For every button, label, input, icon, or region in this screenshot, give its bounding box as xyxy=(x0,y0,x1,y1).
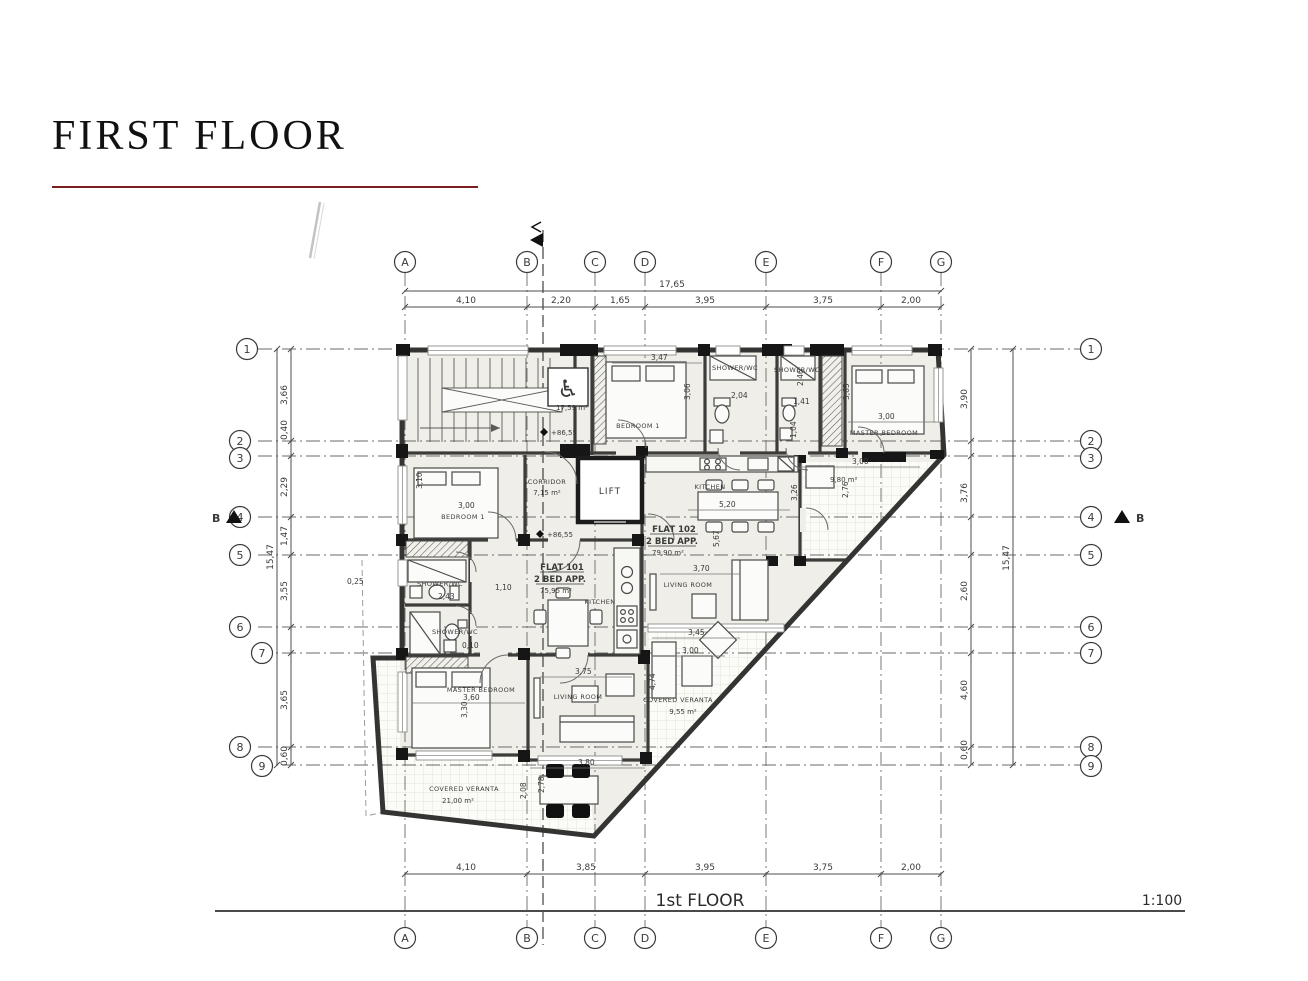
plan-dim-300a: 3,00 xyxy=(878,412,895,421)
dim-top-3: 1,65 xyxy=(610,296,630,306)
grid-letter-e-top: E xyxy=(763,256,770,269)
dim-bot-3: 3,95 xyxy=(695,863,715,873)
dim-top-6: 2,00 xyxy=(901,296,921,306)
pen-mark-artifact xyxy=(310,202,324,259)
flat102-shower1-label: SHOWER/WC xyxy=(712,364,758,372)
grid-letter-g-bottom: G xyxy=(937,932,946,945)
lift-label: LIFT xyxy=(599,487,621,497)
dimension-text-left: 3,66 0,40 2,29 1,47 3,55 3,65 0,60 15,47… xyxy=(266,385,364,766)
plan-dim-330: 3,30 xyxy=(460,701,469,718)
grid-number-7-right: 7 xyxy=(1088,647,1095,660)
plan-dim-347: 3,47 xyxy=(651,353,668,362)
corridor-label: CORRIDOR xyxy=(528,478,567,486)
plan-dim-204: 2,04 xyxy=(731,391,748,400)
grid-numbers-right: 1 2 3 4 5 6 7 8 9 xyxy=(1088,343,1095,773)
plan-dim-326: 3,26 xyxy=(790,484,799,501)
flat101-living-label: LIVING ROOM xyxy=(554,693,603,701)
corridor-area: 7,15 m² xyxy=(533,489,561,497)
flat101-type: 2 BED APP. xyxy=(534,575,586,585)
grid-letter-f-bottom: F xyxy=(878,932,884,945)
grid-number-5-left: 5 xyxy=(237,549,244,562)
grid-number-9-left: 9 xyxy=(259,760,266,773)
flat102-bedroom-label: BEDROOM 1 xyxy=(616,422,660,430)
plan-dim-380: 3,80 xyxy=(578,758,595,767)
grid-number-6-left: 6 xyxy=(237,621,244,634)
plan-dim-300d: 3,00 xyxy=(682,646,699,655)
flat102-balcony-area: 9,80 m² xyxy=(830,476,858,484)
dim-bot-2: 3,85 xyxy=(576,863,596,873)
dimension-text-bottom: 4,10 3,85 3,95 3,75 2,00 xyxy=(456,863,921,873)
flat102-name: FLAT 102 xyxy=(652,525,696,535)
dim-top-1: 4,10 xyxy=(456,296,476,306)
grid-number-4-right: 4 xyxy=(1088,511,1095,524)
flat102-shower2-label: SHOWER/WC xyxy=(774,366,820,374)
dim-bot-5: 2,00 xyxy=(901,863,921,873)
flat102-area: 79,90 m² xyxy=(652,549,684,557)
level-stair: +86,55 xyxy=(551,429,577,437)
flat101-kitchen-label: KITCHEN xyxy=(585,598,616,606)
floor-plan-sheet: FIRST FLOOR xyxy=(0,0,1308,981)
flat101-name: FLAT 101 xyxy=(540,563,584,573)
grid-number-5-right: 5 xyxy=(1088,549,1095,562)
plan-dim-243: 2,43 xyxy=(438,592,455,601)
flat101-master-label: MASTER BEDROOM xyxy=(447,686,515,694)
grid-bubbles-bottom xyxy=(395,928,952,949)
lift-shaft: LIFT xyxy=(578,458,642,522)
dim-left-6: 3,65 xyxy=(280,690,290,710)
level-hall: +86,55 xyxy=(547,531,573,539)
dim-top-5: 3,75 xyxy=(813,296,833,306)
drawing-title: 1st FLOOR xyxy=(656,891,745,911)
grid-letter-b-top: B xyxy=(523,256,531,269)
flat102-type: 2 BED APP. xyxy=(646,537,698,547)
flat101-shower2-label: SHOWER/WC xyxy=(432,628,478,636)
section-b-left-label: B xyxy=(212,512,220,525)
flat102-master-label: MASTER BEDROOM xyxy=(850,429,918,437)
dim-offset: 0,25 xyxy=(347,577,364,586)
grid-number-2-right: 2 xyxy=(1088,435,1095,448)
plan-dim-010: 0,10 xyxy=(462,641,479,650)
grid-letter-b-bottom: B xyxy=(523,932,531,945)
grid-letter-a-top: A xyxy=(401,256,409,269)
grid-numbers-left: 1 2 3 4 5 6 7 8 9 xyxy=(237,343,266,773)
grid-number-7-left: 7 xyxy=(259,647,266,660)
grid-number-1-right: 1 xyxy=(1088,343,1095,356)
plan-dim-306: 3,06 xyxy=(683,383,692,400)
flat102-living-label: LIVING ROOM xyxy=(664,581,713,589)
veranda2-area: 9,55 m² xyxy=(669,708,697,716)
grid-letter-a-bottom: A xyxy=(401,932,409,945)
dim-right-total: 15,47 xyxy=(1002,545,1012,571)
dimension-text-top: 17,65 4,10 2,20 1,65 3,95 3,75 2,00 xyxy=(456,280,921,306)
grid-letter-e-bottom: E xyxy=(763,932,770,945)
plan-dim-365: 3,65 xyxy=(842,383,851,400)
plan-dim-300b: 3,00 xyxy=(852,457,869,466)
dim-left-5: 3,55 xyxy=(280,581,290,601)
plan-dim-370: 3,70 xyxy=(693,564,710,573)
veranda1-label: COVERED VERANTA xyxy=(429,785,499,793)
grid-number-3-right: 3 xyxy=(1088,452,1095,465)
dim-left-1: 3,66 xyxy=(280,385,290,405)
plan-dim-208: 2,08 xyxy=(519,782,528,799)
plan-dim-310: 3,10 xyxy=(415,472,424,489)
section-b-right-arrow-icon xyxy=(1114,510,1130,523)
stair-area-label: 17,59 m² xyxy=(556,404,588,412)
dim-left-7: 0,60 xyxy=(280,746,290,766)
grid-letter-c-top: C xyxy=(591,256,599,269)
drawing-scale: 1:100 xyxy=(1142,893,1182,909)
plan-dim-300c: 3,00 xyxy=(458,501,475,510)
wheelchair-icon: ♿ xyxy=(557,375,579,403)
grid-number-2-left: 2 xyxy=(237,435,244,448)
grid-letter-d-top: D xyxy=(641,256,649,269)
plan-dim-345: 3,45 xyxy=(688,628,705,637)
dim-left-4: 1,47 xyxy=(280,526,290,546)
grid-number-9-right: 9 xyxy=(1088,760,1095,773)
grid-bubbles-top xyxy=(395,252,952,273)
dim-right-5: 0,60 xyxy=(960,740,970,760)
dim-left-3: 2,29 xyxy=(280,477,290,497)
dim-left-total: 15,47 xyxy=(266,544,276,570)
flat101-area: 75,95 m² xyxy=(540,587,572,595)
grid-letter-f-top: F xyxy=(878,256,884,269)
dimension-text-right: 3,90 3,76 2,60 4,60 0,60 15,47 xyxy=(960,389,1012,760)
grid-number-3-left: 3 xyxy=(237,452,244,465)
dim-top-total: 17,65 xyxy=(659,280,685,290)
dim-top-4: 3,95 xyxy=(695,296,715,306)
dim-bot-1: 4,10 xyxy=(456,863,476,873)
plan-dim-474: 4,74 xyxy=(648,673,657,690)
grid-number-8-left: 8 xyxy=(237,741,244,754)
plan-dim-520: 5,20 xyxy=(719,500,736,509)
grid-number-8-right: 8 xyxy=(1088,741,1095,754)
plan-dim-360: 3,60 xyxy=(463,693,480,702)
accessible-symbol: ♿ xyxy=(548,368,588,406)
grid-letter-d-bottom: D xyxy=(641,932,649,945)
flat101-bedroom-label: BEDROOM 1 xyxy=(441,513,485,521)
dim-bot-4: 3,75 xyxy=(813,863,833,873)
veranda2-label: COVERED VERANTA xyxy=(643,696,713,704)
drawing-footer: 1st FLOOR 1:100 xyxy=(215,891,1185,911)
plan-dim-141: 1,41 xyxy=(793,397,810,406)
grid-letter-c-bottom: C xyxy=(591,932,599,945)
grid-letters-bottom: A B C D E F G xyxy=(401,932,945,945)
dim-right-3: 2,60 xyxy=(960,581,970,601)
grid-letters-top: A B C D E F G xyxy=(401,256,945,269)
veranda1-area: 21,00 m² xyxy=(442,797,474,805)
flat102-kitchen-label: KITCHEN xyxy=(695,483,726,491)
plan-dim-110: 1,10 xyxy=(495,583,512,592)
dim-right-4: 4,60 xyxy=(960,680,970,700)
plan-dim-104: 1,04 xyxy=(789,421,798,438)
dim-right-1: 3,90 xyxy=(960,389,970,409)
flat101-shower1-label: SHOWER/WC xyxy=(417,580,463,588)
dim-left-2: 0,40 xyxy=(280,420,290,440)
dim-right-2: 3,76 xyxy=(960,483,970,503)
plan-dim-567: 5,67 xyxy=(712,530,721,547)
plan-dim-375: 3,75 xyxy=(575,667,592,676)
plan-dim-278: 2,78 xyxy=(537,776,546,793)
grid-number-1-left: 1 xyxy=(244,343,251,356)
grid-number-6-right: 6 xyxy=(1088,621,1095,634)
section-b-right-label: B xyxy=(1136,512,1144,525)
floor-plan-drawing: LIFT ♿ xyxy=(0,0,1308,981)
dim-top-2: 2,20 xyxy=(551,296,571,306)
grid-letter-g-top: G xyxy=(937,256,946,269)
